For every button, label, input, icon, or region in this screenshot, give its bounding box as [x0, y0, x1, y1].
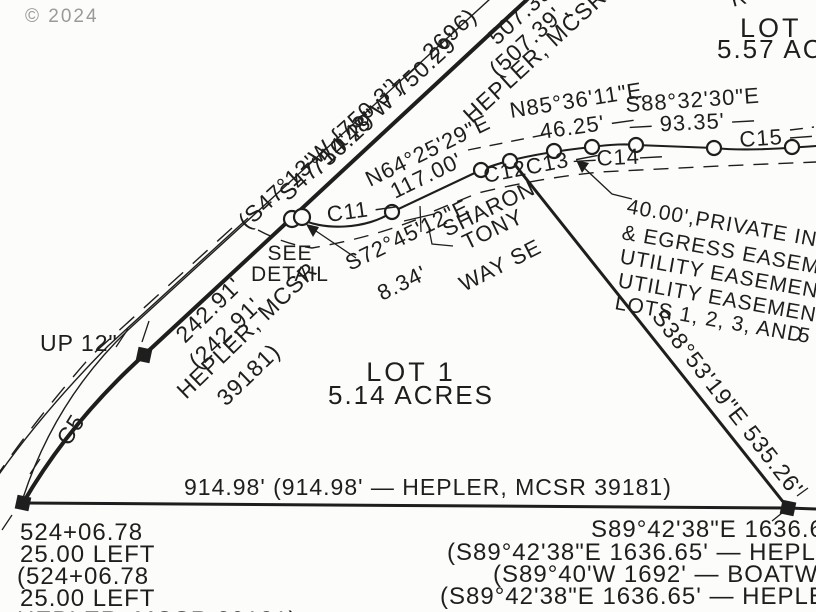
- curve-point-double-b: [294, 209, 310, 225]
- east-boundary-dimension-line4: (S89°42'38"E 1636.65' — HEPLER,: [440, 583, 816, 610]
- survey-plat-page: © 2024 S47°14'48"W 750.29' (S47°13'W {75…: [0, 0, 816, 612]
- distance-9335-label: — 93.35' —: [629, 106, 756, 138]
- utility-pole-label: UP 12": [40, 330, 118, 356]
- distance-834-label: 8.34': [373, 260, 431, 305]
- south-boundary-dimension-label: 914.98' (914.98' — HEPLER, MCSR 39181): [184, 474, 672, 500]
- curve-c15-label: C15 —: [739, 122, 814, 152]
- curve-point: [707, 141, 721, 155]
- boundary-line-south: [23, 503, 816, 509]
- curve-c11-label: C11 —: [325, 192, 400, 227]
- curve-c12c13-label: C12C13 —: [481, 141, 600, 188]
- monument-marker: [15, 495, 32, 512]
- lot1-acres-label: 5.14 ACRES: [328, 380, 494, 410]
- monument-marker: [136, 347, 153, 364]
- top-right-partial-label: R 5.: [728, 0, 775, 12]
- monument-marker: [780, 500, 797, 517]
- leader-see-detail-arrowhead: [306, 224, 319, 237]
- copyright-watermark: © 2024: [25, 6, 99, 27]
- right-edge-partial-label: 5: [796, 323, 812, 348]
- station-note-line5: HEPLER, MCSR 39181): [17, 607, 297, 612]
- plat-drawing: © 2024 S47°14'48"W 750.29' (S47°13'W {75…: [0, 0, 816, 612]
- lot2-acres-label: 5.57 ACR: [717, 34, 816, 64]
